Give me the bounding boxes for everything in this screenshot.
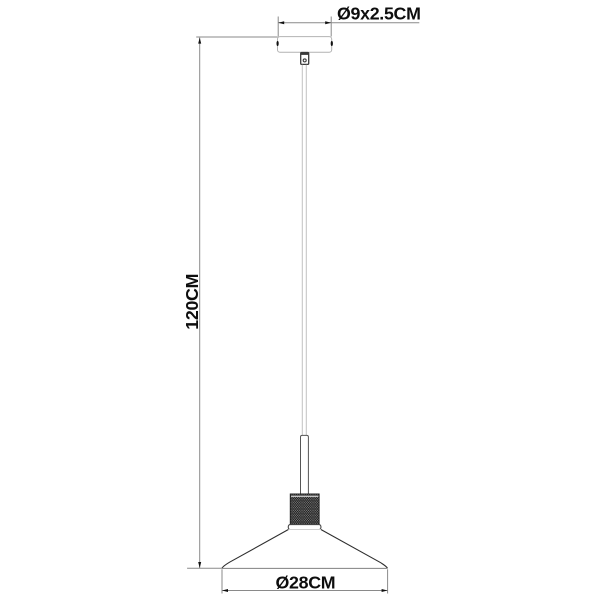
svg-text:Ø9x2.5CM: Ø9x2.5CM [337, 4, 421, 24]
svg-text:120CM: 120CM [182, 274, 202, 330]
svg-text:Ø28CM: Ø28CM [276, 573, 336, 593]
